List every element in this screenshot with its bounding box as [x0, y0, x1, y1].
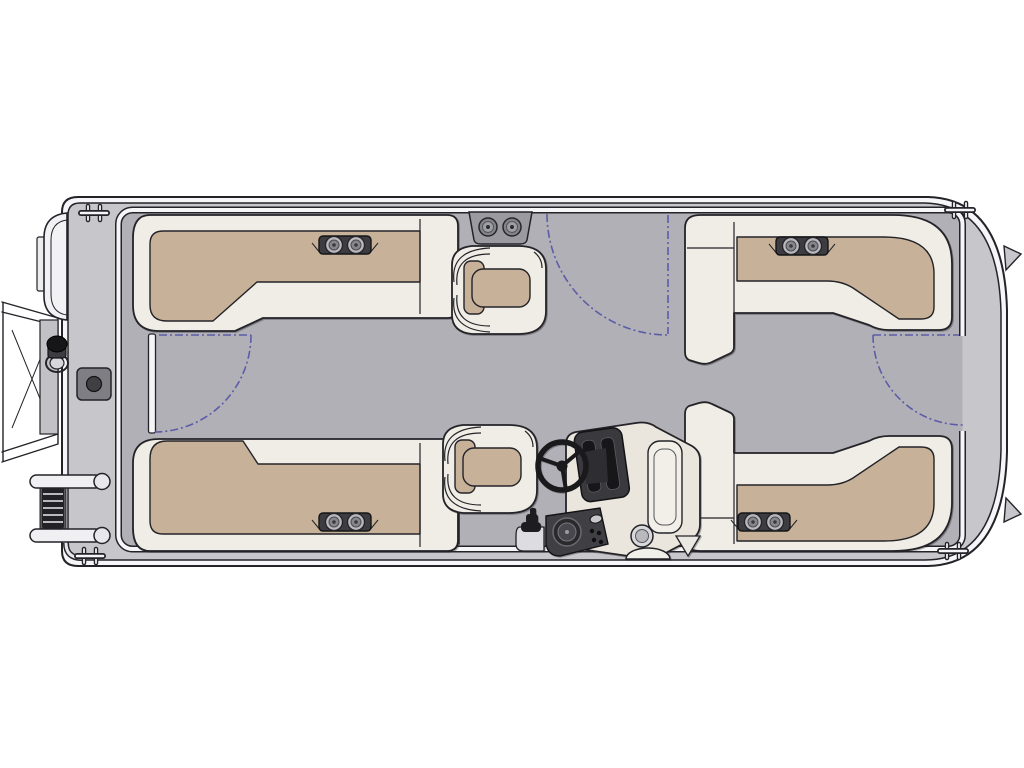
speaker-icon	[503, 218, 521, 236]
cup-holders-aft-port	[312, 236, 378, 254]
nose-cone-top	[1004, 246, 1021, 270]
cup-holders-bow-port	[769, 237, 835, 255]
stern-tow-frame	[2, 302, 58, 462]
companion-recliner-chair	[452, 246, 546, 334]
captain-recliner-chair	[443, 425, 537, 513]
console-side-door	[648, 441, 682, 533]
cup-holders-bow-starboard	[731, 513, 797, 531]
grab-handle-bottom	[30, 529, 102, 542]
speaker-panel	[469, 212, 532, 244]
outboard-motor	[37, 213, 67, 320]
grab-handle-top	[30, 475, 102, 488]
lounge-aft-port	[133, 215, 458, 331]
speaker-icon	[479, 218, 497, 236]
bow-gate-opening-outer	[963, 336, 973, 431]
lounge-aft-starboard	[133, 439, 458, 551]
bow-gate-opening	[955, 336, 963, 431]
nose-cone-bottom	[1004, 498, 1021, 522]
helm-cup-holder	[631, 525, 653, 547]
cup-holders-aft-starboard	[312, 513, 378, 531]
pontoon-floorplan	[0, 0, 1024, 768]
floorplan-image	[0, 0, 1024, 768]
deck-storage-box	[77, 368, 111, 400]
